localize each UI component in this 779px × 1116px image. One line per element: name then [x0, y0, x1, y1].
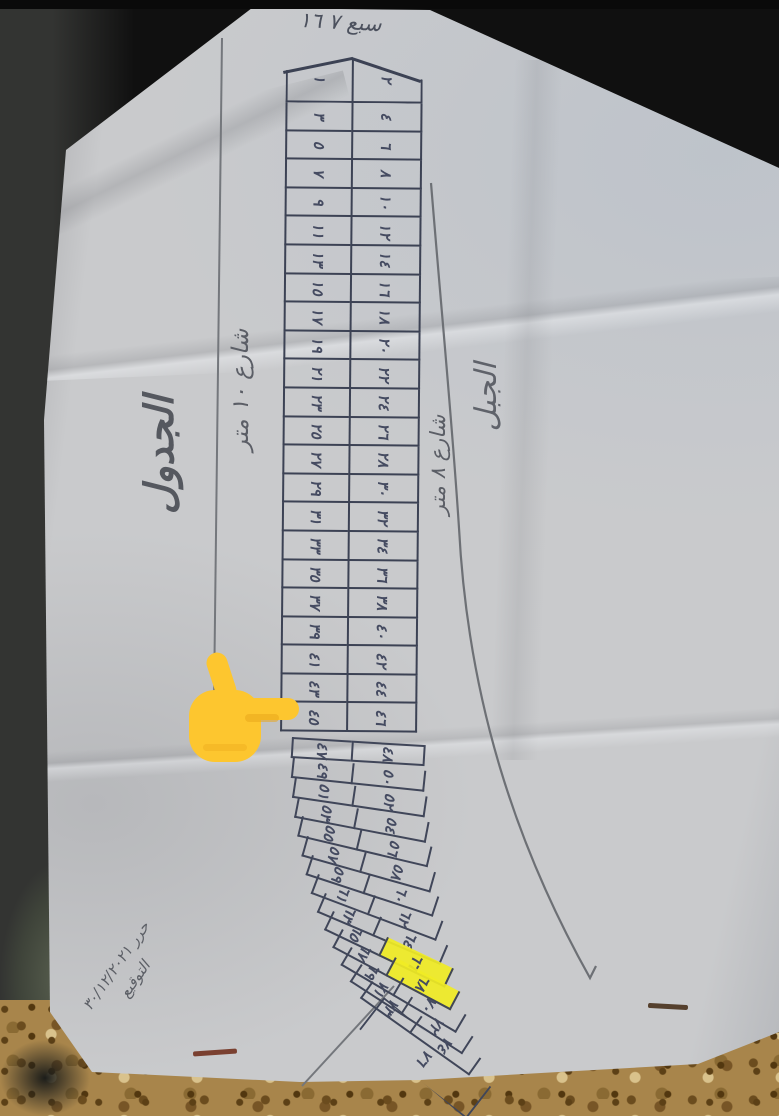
area-label: الجبل: [469, 322, 505, 472]
plot-number: ١٠: [377, 194, 395, 210]
plot-cell: ٢٢: [349, 360, 420, 389]
table-row: ١٧١٨: [284, 303, 421, 333]
table-row: ٢١٢٢: [283, 360, 420, 390]
plot-cell: ١١: [284, 217, 350, 246]
street-10m-label: شارع ١٠ متر: [228, 225, 258, 555]
plot-number: ٣٥: [306, 565, 324, 581]
plot-cell: ٣٢: [348, 503, 419, 532]
table-row: ١٥١٦: [284, 274, 421, 304]
plot-number: ٤٢: [373, 652, 391, 668]
table-row: ٣٧٣٨: [281, 588, 418, 618]
plot-cell: ٣٧: [281, 588, 347, 617]
plot-cell: ١٢: [350, 217, 421, 246]
upper-plot-table: ١٢٣٤٥٦٧٨٩١٠١١١٢١٣١٤١٥١٦١٧١٨١٩٢٠٢١٢٢٢٣٢٤٢…: [280, 56, 423, 732]
plot-number: ٥١: [314, 781, 334, 800]
plot-number: ١٢: [377, 223, 395, 239]
plot-number: ٢١: [308, 365, 326, 381]
plot-number: ١٤: [377, 251, 395, 267]
plot-number: ٥٨: [387, 861, 409, 881]
plot-number: ٩: [310, 198, 328, 206]
plot-number: ١٦: [376, 280, 394, 296]
plot-number: ٢٠: [376, 337, 394, 353]
table-row: ٣٥٣٦: [281, 560, 418, 590]
plot-cell: ٧: [285, 160, 351, 189]
plot-cell: ٤٦: [346, 703, 417, 732]
table-row: ٤٥٤٦: [280, 703, 417, 733]
plot-number: ١٧: [309, 308, 327, 324]
plot-cell: ٣٨: [347, 589, 418, 618]
table-row: ٢٥٢٦: [283, 417, 420, 447]
table-row: ٤٣٤٤: [280, 674, 417, 704]
plot-cell: ١٨: [350, 303, 421, 332]
plot-number: ٢٣: [308, 394, 326, 410]
plot-cell: ٢: [352, 57, 423, 104]
plot-cell: ٤٨: [351, 741, 426, 766]
table-row: ٣٣٣٤: [282, 531, 419, 561]
table-row: ٢٧٢٨: [282, 446, 419, 476]
plot-number: ٤٥: [305, 708, 323, 724]
plot-number: ٤٣: [305, 680, 323, 696]
plot-cell: ٢٧: [282, 446, 348, 475]
plot-number: ٣٩: [306, 623, 324, 639]
plot-number: ٣٧: [306, 594, 324, 610]
plot-number: ٤١: [306, 651, 324, 667]
plot-cell: ٩: [285, 188, 351, 217]
plot-number: ٣: [310, 112, 328, 120]
plot-cell: ٣٤: [348, 532, 419, 561]
plot-number: ٣٣: [307, 537, 325, 553]
plot-number: ٥٢: [380, 791, 400, 810]
table-row: ٢٣٢٤: [283, 388, 420, 418]
plot-number: ٢٧: [307, 451, 325, 467]
plot-cell: ٢٠: [349, 332, 420, 361]
plot-cell: ٦: [351, 132, 422, 161]
plot-number: ١: [311, 75, 329, 83]
plot-number: ٤: [378, 112, 396, 120]
plot-number: ١١: [309, 222, 327, 238]
plot-number: ٤٨: [379, 745, 398, 762]
plot-cell: ٣١: [282, 503, 348, 532]
plot-number: ٧: [310, 169, 328, 177]
plot-cell: ٤٠: [347, 618, 418, 647]
plot-cell: ٨: [351, 160, 422, 189]
plot-number: ٢٨: [375, 452, 393, 468]
plot-cell: ١٤: [350, 246, 421, 275]
plot-number: ٤٧: [313, 741, 332, 758]
plot-number: ٥٠: [379, 768, 399, 786]
plot-number: ٤٤: [373, 680, 391, 696]
table-row: ٣٩٤٠: [281, 617, 418, 647]
plot-number: ٧٦: [413, 1046, 437, 1070]
table-row: ٢٩٣٠: [282, 474, 419, 504]
street-8m-label: شارع ٨ متر: [426, 325, 454, 605]
plot-cell: ٢٥: [283, 417, 349, 446]
table-row: ٤١٤٢: [281, 646, 418, 676]
table-title: الجدول: [137, 347, 189, 563]
plot-cell: ٤٢: [347, 646, 418, 675]
photo-top-edge: [0, 0, 779, 9]
plot-number: ٨: [377, 170, 395, 178]
plot-number: ٣٨: [374, 595, 392, 611]
plot-cell: ١٧: [284, 303, 350, 332]
plot-number: ٤٦: [373, 709, 391, 725]
plot-number: ١٥: [309, 279, 327, 295]
table-row: ٣١٣٢: [282, 503, 419, 533]
table-row: ١١١٢: [284, 217, 421, 247]
plot-cell: ٣٥: [281, 560, 347, 589]
table-row: ١٣١٤: [284, 245, 421, 275]
plot-number: ٢٥: [308, 422, 326, 438]
plot-cell: ٢١: [283, 360, 349, 389]
plot-number: ٢٤: [375, 394, 393, 410]
plot-number: ٣١: [307, 508, 325, 524]
plot-number: ٥٤: [381, 815, 402, 834]
street-10m-line: [214, 38, 222, 700]
plot-cell: ١٩: [283, 331, 349, 360]
plot-cell: ٣٦: [347, 560, 418, 589]
plot-cell: ٢٤: [349, 389, 420, 418]
plot-number: ٢٢: [376, 366, 394, 382]
plot-cell: ٢٨: [348, 446, 419, 475]
plot-cell: ٢٩: [282, 474, 348, 503]
table-row: ٧٨: [285, 160, 422, 190]
plot-cell: ٢٦: [349, 418, 420, 447]
plot-number: ٣٠: [375, 480, 393, 496]
plot-number: ١٩: [308, 337, 326, 353]
plot-number: ٢٦: [375, 423, 393, 439]
backhand-pointing-right-icon: [168, 648, 300, 766]
plot-number: ٤٩: [313, 761, 333, 779]
boundary-curve-line: [431, 183, 596, 978]
plot-cell: ٣: [285, 102, 351, 131]
plot-cell: ٥: [285, 131, 351, 160]
plot-cell: ١٠: [351, 189, 422, 218]
plot-number: ٢: [378, 75, 396, 83]
table-row: ١٩٢٠: [283, 331, 420, 361]
plot-number: ٣٦: [374, 566, 392, 582]
photo-of-hand-drawn-plot-plan: ١٢٣٤٥٦٧٨٩١٠١١١٢١٣١٤١٥١٦١٧١٨١٩٢٠٢١٢٢٢٣٢٤٢…: [0, 0, 779, 1116]
plot-cell: ١٦: [350, 275, 421, 304]
plot-number: ٦: [378, 141, 396, 149]
plot-cell: ٤: [351, 103, 422, 132]
plot-number: ١٣: [309, 251, 327, 267]
table-row: ٥٦: [285, 131, 422, 161]
table-row: ١٢: [286, 56, 423, 103]
plot-number: ١٨: [376, 309, 394, 325]
plot-cell: ١٥: [284, 274, 350, 303]
plot-cell: ١٣: [284, 245, 350, 274]
table-row: ٩١٠: [285, 188, 422, 218]
plot-number: ٣٤: [374, 537, 392, 553]
plot-number: ٢٩: [307, 480, 325, 496]
plot-cell: ٣٩: [281, 617, 347, 646]
plot-number: ٥٦: [384, 838, 405, 858]
plot-cell: ٣٣: [282, 531, 348, 560]
plot-cell: ٤٤: [346, 675, 417, 704]
plot-cell: ٢٣: [283, 388, 349, 417]
plot-number: ٤٠: [373, 623, 391, 639]
plot-number: ٥: [310, 140, 328, 148]
plot-number: ٣٢: [374, 509, 392, 525]
plot-cell: ٣٠: [348, 475, 419, 504]
table-row: ٣٤: [285, 102, 422, 132]
plot-number: ٥٣: [317, 802, 338, 821]
